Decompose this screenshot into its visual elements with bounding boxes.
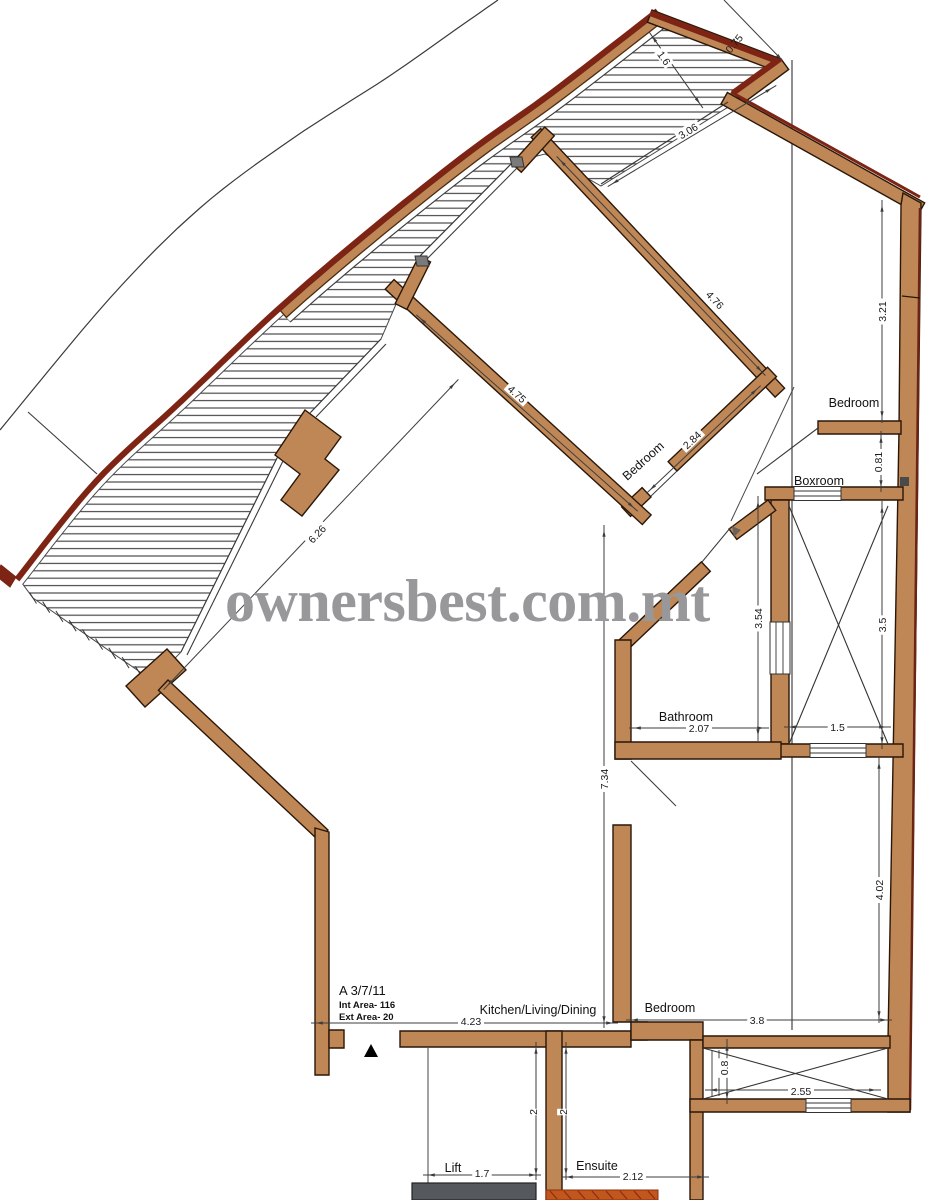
svg-text:2.12: 2.12 <box>623 1171 644 1183</box>
svg-text:A 3/7/11: A 3/7/11 <box>339 983 386 998</box>
svg-text:1.5: 1.5 <box>830 722 845 734</box>
svg-text:Bedroom: Bedroom <box>645 1001 696 1015</box>
svg-text:Ext Area- 20: Ext Area- 20 <box>339 1012 394 1023</box>
svg-text:ownersbest.com.mt: ownersbest.com.mt <box>225 568 710 634</box>
svg-text:3.21: 3.21 <box>877 301 889 322</box>
svg-text:0.8: 0.8 <box>719 1061 731 1076</box>
svg-text:2: 2 <box>558 1109 570 1115</box>
svg-text:3.54: 3.54 <box>753 608 765 629</box>
svg-text:Bathroom: Bathroom <box>659 710 713 724</box>
svg-text:2.55: 2.55 <box>791 1086 812 1098</box>
svg-text:3.5: 3.5 <box>877 618 889 633</box>
svg-text:0.81: 0.81 <box>873 452 885 473</box>
svg-text:Bedroom: Bedroom <box>829 396 880 410</box>
svg-text:1.7: 1.7 <box>475 1168 490 1180</box>
svg-text:Boxroom: Boxroom <box>794 474 844 488</box>
svg-text:2: 2 <box>528 1109 540 1115</box>
svg-text:7.34: 7.34 <box>599 769 611 790</box>
svg-text:Int Area- 116: Int Area- 116 <box>339 1000 395 1011</box>
svg-text:4.23: 4.23 <box>461 1016 482 1028</box>
svg-text:3.8: 3.8 <box>750 1015 765 1027</box>
svg-text:Lift: Lift <box>445 1161 462 1175</box>
svg-text:2.07: 2.07 <box>689 723 710 735</box>
svg-text:Kitchen/Living/Dining: Kitchen/Living/Dining <box>480 1003 597 1017</box>
svg-text:Ensuite: Ensuite <box>576 1159 618 1173</box>
svg-text:4.02: 4.02 <box>874 880 886 901</box>
